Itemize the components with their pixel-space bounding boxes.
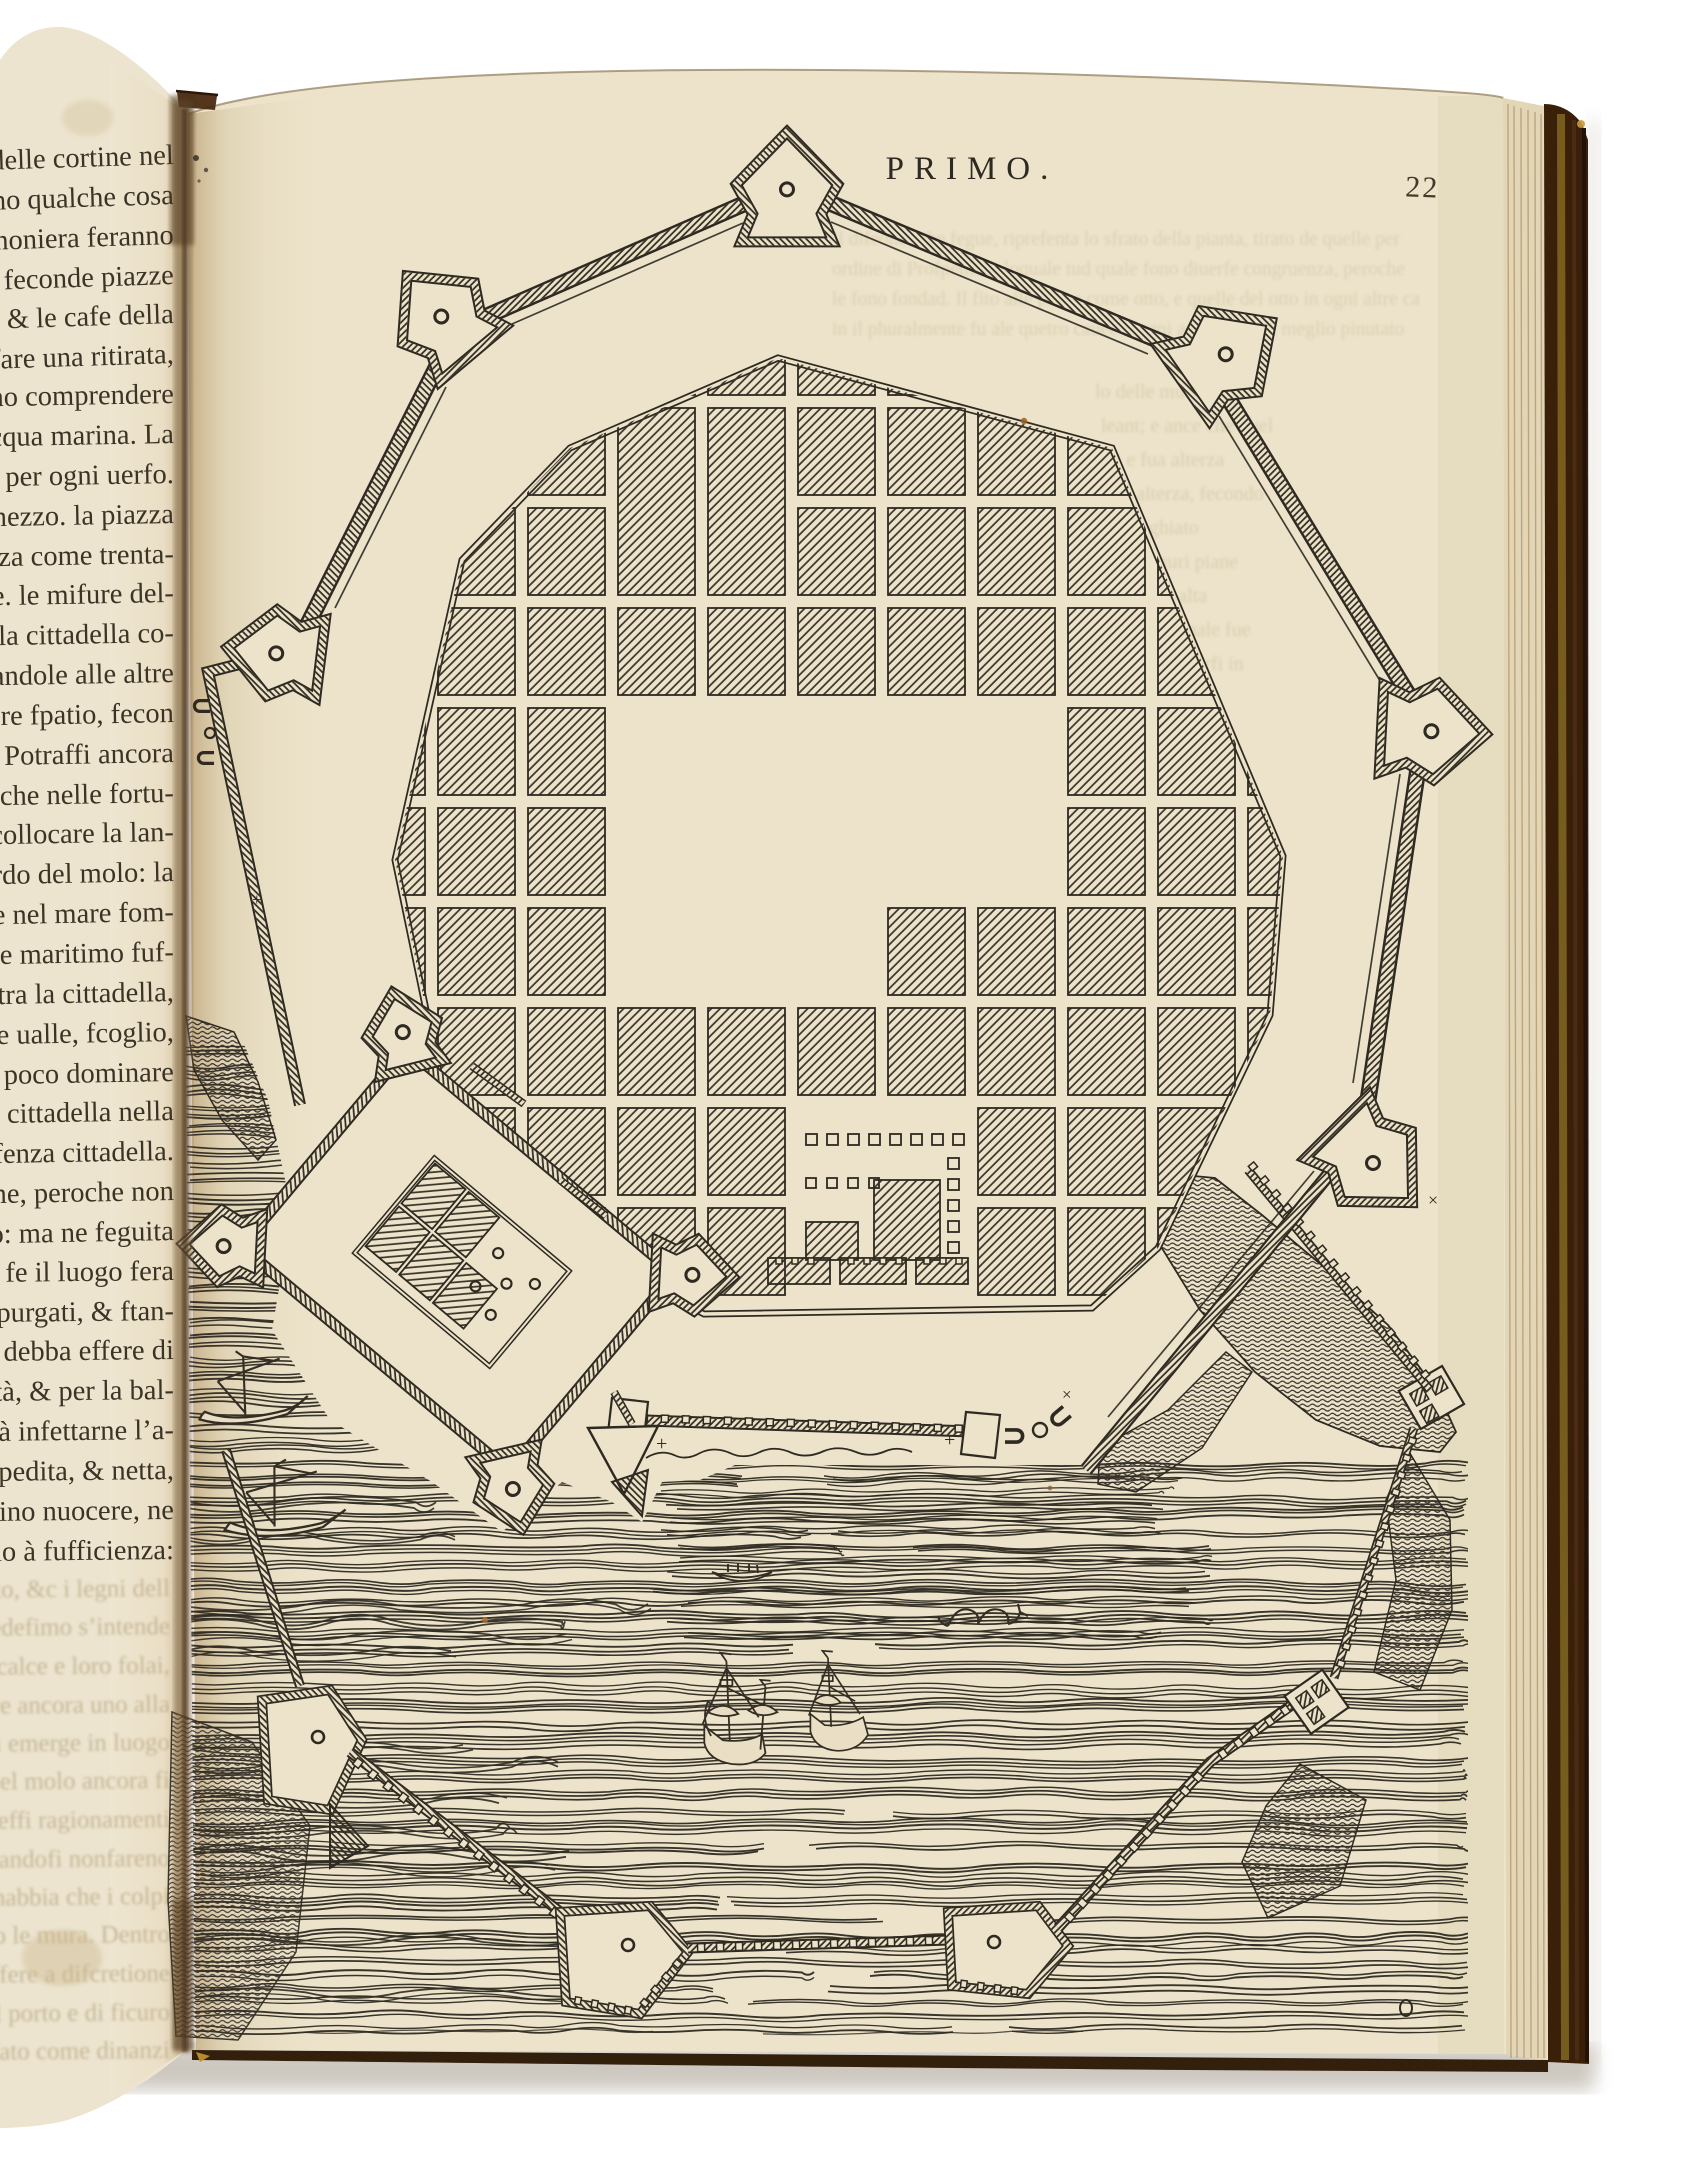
svg-text:ua calce e loro folai,: ua calce e loro folai,: [0, 1652, 170, 1681]
svg-text:fare ancora uno alla: fare ancora uno alla: [0, 1691, 170, 1720]
svg-text:quantunque maritimo fuf-: quantunque maritimo fuf-: [0, 937, 174, 973]
svg-text:meno che nel mare fom-: meno che nel mare fom-: [0, 897, 174, 933]
svg-text:olo fe non poco dominare: olo fe non poco dominare: [0, 1057, 174, 1093]
svg-text:mpire di acqua marina. La: mpire di acqua marina. La: [0, 419, 174, 455]
svg-text:cii cofi della cittadella co-: cii cofi della cittadella co-: [0, 618, 174, 654]
svg-text:la larghezza come trenta-: la larghezza come trenta-: [0, 539, 174, 575]
svg-text:×: ×: [1062, 1385, 1072, 1404]
svg-text:+: +: [252, 890, 262, 909]
svg-text:are un’altra cittadella nella: are un’altra cittadella nella: [0, 1096, 174, 1132]
svg-text:ch’el porto e di ficuro: ch’el porto e di ficuro: [0, 1999, 170, 2028]
svg-text:onueniffe. Potraffi ancora: onueniffe. Potraffi ancora: [0, 738, 174, 774]
svg-text:PRIMO.: PRIMO.: [886, 151, 1059, 187]
svg-text:ore o minore fpatio, fecon: ore o minore fpatio, fecon: [0, 698, 174, 734]
svg-text:zarfi, è da collocare la lan-: zarfi, è da collocare la lan-: [0, 817, 174, 853]
svg-text:ane fette e mezzo. la piazza: ane fette e mezzo. la piazza: [0, 499, 174, 535]
svg-text:po la ftate à infettarne l’a-: po la ftate à infettarne l’a-: [0, 1415, 174, 1449]
svg-text:che fi emerge in luogo: che fi emerge in luogo: [0, 1729, 170, 1758]
svg-text:re del molo ancora fi: re del molo ancora fi: [0, 1767, 170, 1796]
svg-text:+: +: [944, 1429, 955, 1451]
svg-text:no il porto: ma ne feguita: no il porto: ma ne feguita: [0, 1216, 174, 1252]
svg-text:proportionandole alle altre: proportionandole alle altre: [0, 658, 174, 694]
svg-text:le fono fondad. Il fito alle p: le fono fondad. Il fito alle pietre come…: [832, 289, 1420, 310]
svg-text:acciafi fpedita, & netta,: acciafi fpedita, & netta,: [0, 1455, 174, 1489]
svg-text:no l’aria. & fe il luogo fera: no l’aria. & fe il luogo fera: [0, 1256, 174, 1290]
svg-text:antacinque per ogni uerfo.: antacinque per ogni uerfo.: [0, 459, 174, 495]
svg-text:li ifteffi ragionamenti: li ifteffi ragionamenti: [0, 1806, 170, 1835]
svg-text:terponeffe ualle, fcoglio,: terponeffe ualle, fcoglio,: [0, 1017, 174, 1053]
svg-text:ne uintidue. le mifure del-: ne uintidue. le mifure del-: [0, 578, 174, 614]
svg-text:×: ×: [1428, 1190, 1438, 1210]
svg-text:à cagione, che nelle fortu-: à cagione, che nelle fortu-: [0, 778, 174, 814]
svg-text:che c’habbia che i colpi: che c’habbia che i colpi: [0, 1883, 170, 1912]
svg-text:o herbofità, & per la bal-: o herbofità, & per la bal-: [0, 1375, 174, 1409]
svg-text:e il medefimo s’intende: e il medefimo s’intende: [0, 1613, 170, 1642]
svg-text:nondimeno comprendere: nondimeno comprendere: [0, 379, 174, 415]
svg-text:oce di fiume, peroche non: oce di fiume, peroche non: [0, 1176, 174, 1212]
svg-text:trouandofi nonfareno: trouandofi nonfareno: [0, 1845, 170, 1874]
svg-text:no, tal che tra la cittadella,: no, tal che tra la cittadella,: [0, 977, 174, 1013]
svg-text:uigli poffino nuocere, ne: uigli poffino nuocere, ne: [0, 1495, 174, 1529]
svg-text:il fuo ufato come dinanzi: il fuo ufato come dinanzi: [0, 2037, 170, 2066]
svg-text:ino rotti, purgati, & ftan-: ino rotti, purgati, & ftan-: [0, 1296, 174, 1330]
svg-text:zi e fua alterza: zi e fua alterza: [1107, 449, 1224, 471]
svg-text:i: il quale debba effere di: i: il quale debba effere di: [0, 1335, 174, 1369]
svg-text:tro baluardo del molo: la: tro baluardo del molo: la: [0, 857, 174, 893]
svg-text:+: +: [656, 1433, 667, 1455]
svg-text:r il molo fenza cittadella.: r il molo fenza cittadella.: [0, 1136, 174, 1172]
svg-text:onquefto, &c i legni dell: onquefto, &c i legni dell: [0, 1575, 170, 1604]
svg-text:ordine di Profpettiua: loquale: ordine di Profpettiua: loquale tud quale…: [832, 259, 1405, 280]
svg-text:ogo proprio à fufficienza:: ogo proprio à fufficienza:: [0, 1535, 174, 1569]
svg-text:22: 22: [1405, 170, 1440, 204]
